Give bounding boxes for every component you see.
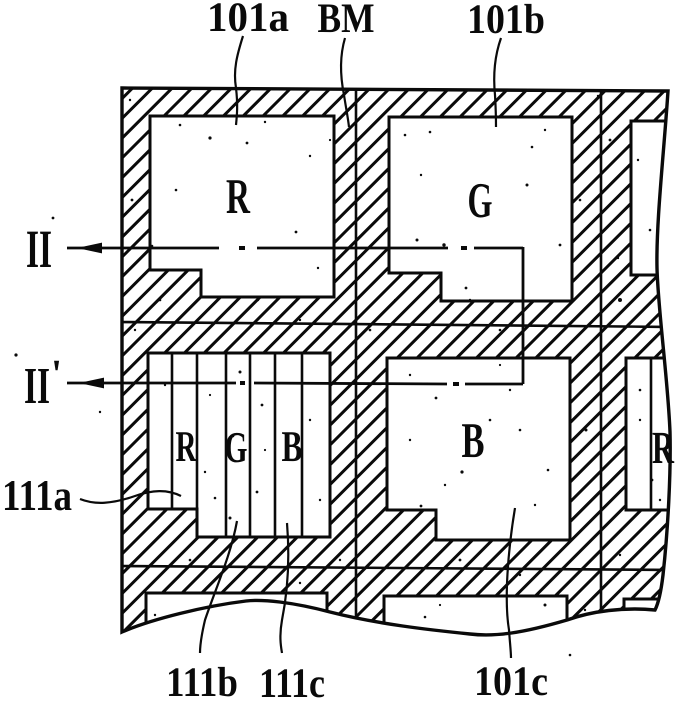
svg-text:101c: 101c xyxy=(474,659,548,705)
svg-text:G: G xyxy=(468,172,493,228)
svg-text:111c: 111c xyxy=(259,661,325,705)
svg-text:II: II xyxy=(24,358,50,415)
svg-text:': ' xyxy=(51,351,62,396)
svg-text:R: R xyxy=(226,168,251,224)
svg-text:101b: 101b xyxy=(467,0,545,43)
svg-text:R: R xyxy=(176,422,198,471)
svg-text:101a: 101a xyxy=(207,0,289,41)
svg-text:111b: 111b xyxy=(166,660,238,705)
svg-text:R: R xyxy=(652,422,675,473)
svg-text:G: G xyxy=(225,423,248,472)
svg-text:111a: 111a xyxy=(2,471,72,520)
svg-text:II: II xyxy=(26,219,52,279)
svg-text:BM: BM xyxy=(318,0,375,42)
svg-text:B: B xyxy=(282,422,303,471)
svg-text:B: B xyxy=(462,412,485,468)
